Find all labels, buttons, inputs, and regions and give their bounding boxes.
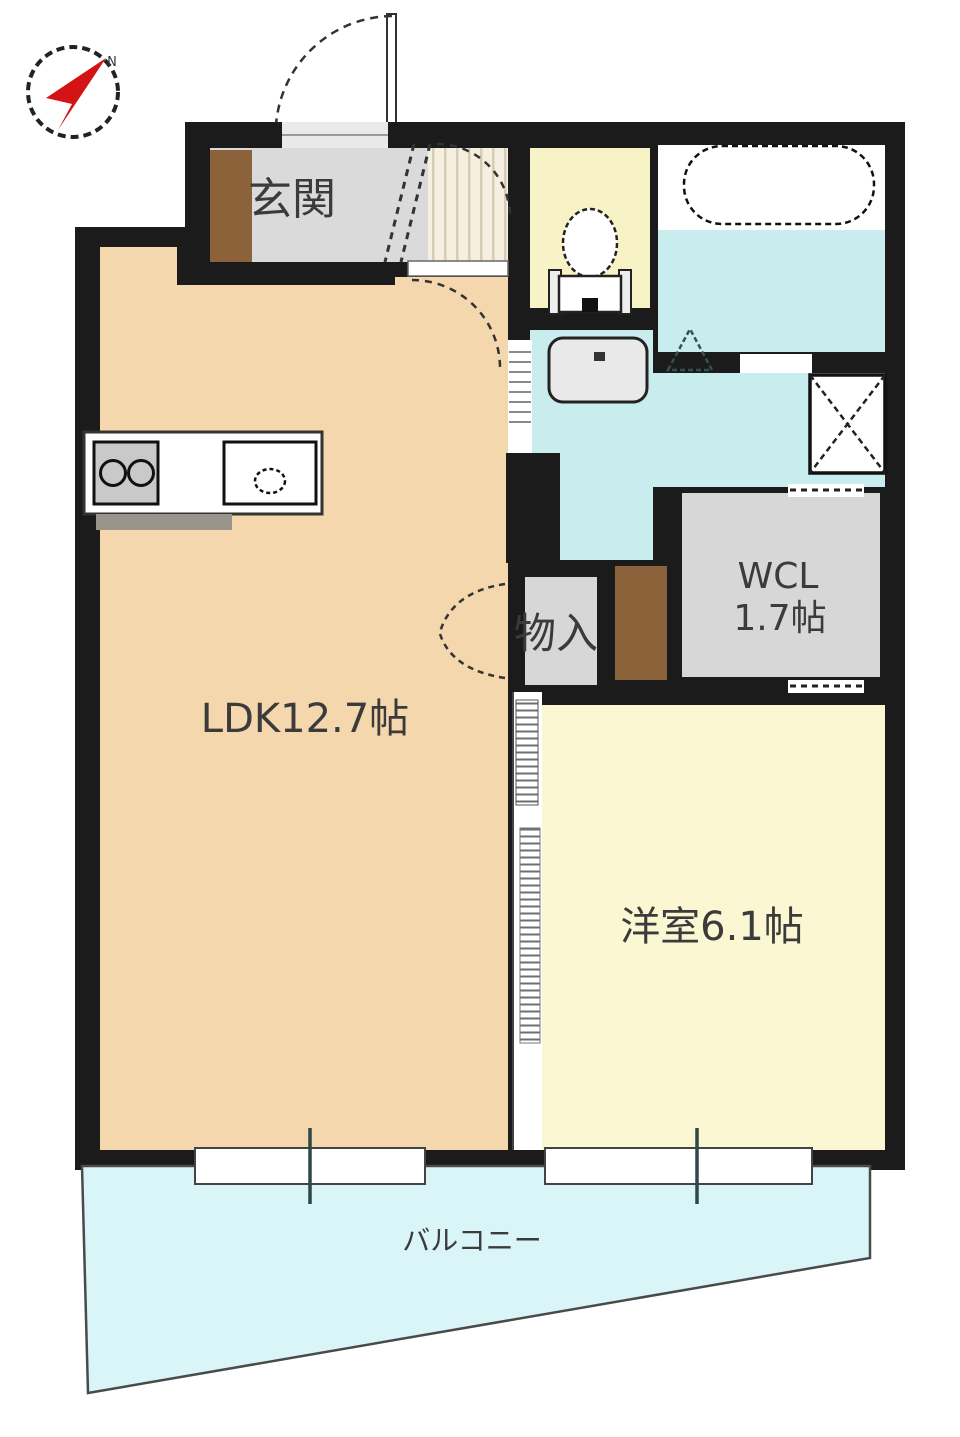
kitchen-counter <box>84 432 322 530</box>
ldk-label: LDK12.7帖 <box>201 696 409 742</box>
stove-burner-right <box>129 461 154 486</box>
closet-door <box>615 566 667 680</box>
washroom-door-opening <box>508 340 532 453</box>
western-room-label: 洋室6.1帖 <box>620 904 804 950</box>
genkan-label: 玄関 <box>248 174 336 225</box>
sliding-door-panel-2 <box>520 828 540 1043</box>
bathtub <box>684 146 874 224</box>
floorplan-drawing: N <box>0 0 960 1437</box>
kitchen-sink-basin <box>255 469 285 493</box>
shoe-cabinet <box>210 150 252 262</box>
floorplan-page: N <box>0 0 960 1437</box>
toilet-bowl <box>563 209 617 277</box>
compass-icon: N <box>28 47 118 137</box>
pipe-space-wall <box>506 453 560 563</box>
bathroom-door-opening <box>740 354 812 373</box>
kitchen-counter-shadow <box>96 514 232 530</box>
hallway-ldk-door-leaf <box>408 261 508 276</box>
vanity-sink <box>549 338 647 402</box>
vanity-basin <box>549 338 647 402</box>
toilet-seat-mark <box>582 298 598 312</box>
sliding-door-track <box>512 692 542 1150</box>
wcl-label-line2: 1.7帖 <box>733 598 826 639</box>
compass-north-label: N <box>107 55 117 70</box>
washing-machine-pan <box>810 375 885 473</box>
wcl-label-line1: WCL <box>738 556 819 597</box>
entrance-door-leaf <box>387 14 396 134</box>
hallway-floor <box>428 148 508 262</box>
balcony-label: バルコニー <box>402 1224 541 1257</box>
bedroom-window-band <box>545 1148 812 1184</box>
stove-burner-left <box>101 461 126 486</box>
storage-label: 物入 <box>514 609 598 658</box>
vanity-faucet-icon <box>594 352 605 361</box>
sliding-door-panel-1 <box>516 700 538 805</box>
